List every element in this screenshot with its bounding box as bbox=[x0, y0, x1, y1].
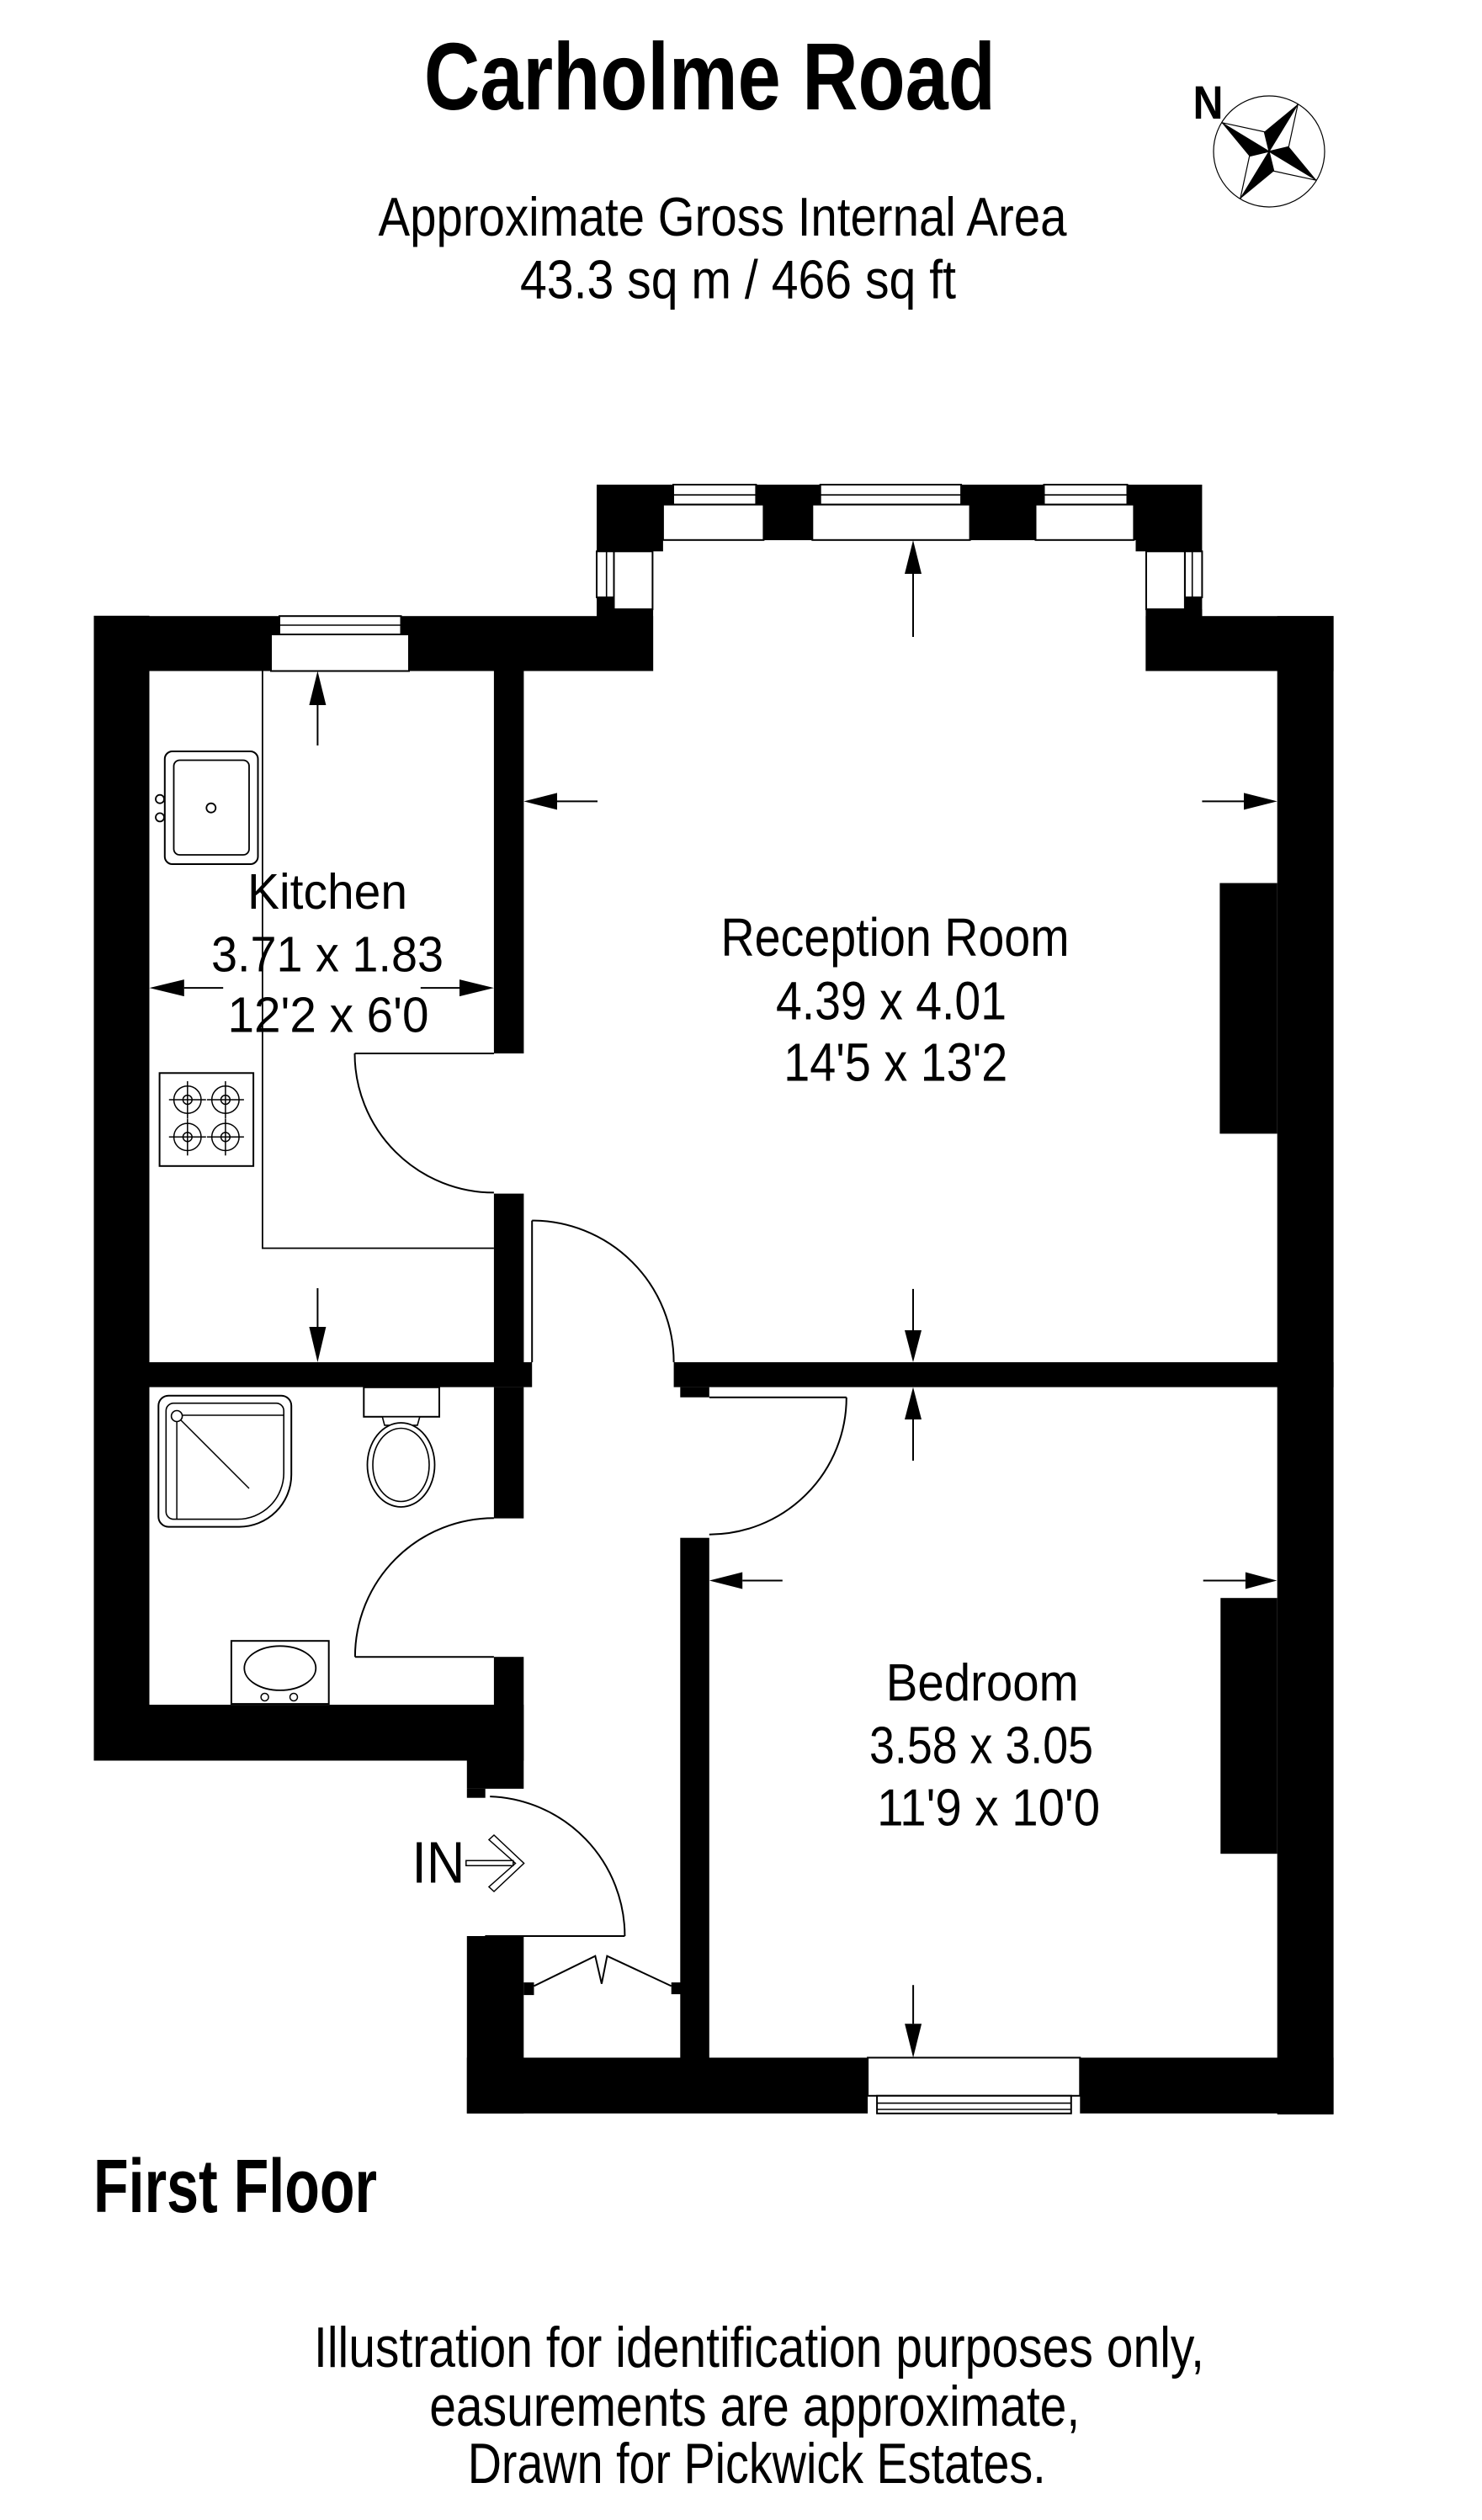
svg-text:easurements are approximate,: easurements are approximate, bbox=[429, 2374, 1080, 2438]
svg-text:Kitchen: Kitchen bbox=[247, 864, 407, 920]
svg-text:12'2 x 6'0: 12'2 x 6'0 bbox=[228, 988, 429, 1043]
svg-text:Carholme Road: Carholme Road bbox=[424, 24, 996, 130]
svg-text:First Floor: First Floor bbox=[93, 2145, 377, 2229]
svg-text:3.58 x 3.05: 3.58 x 3.05 bbox=[869, 1717, 1093, 1775]
svg-text:Illustration for identificatio: Illustration for identification purposes… bbox=[314, 2316, 1204, 2379]
svg-text:43.3 sq m / 466 sq ft: 43.3 sq m / 466 sq ft bbox=[520, 249, 956, 310]
svg-text:14'5 x 13'2: 14'5 x 13'2 bbox=[783, 1032, 1007, 1093]
svg-text:Drawn for Pickwick Estates.: Drawn for Pickwick Estates. bbox=[468, 2432, 1046, 2496]
svg-text:Approximate Gross Internal Are: Approximate Gross Internal Area bbox=[379, 186, 1068, 247]
svg-text:11'9 x 10'0: 11'9 x 10'0 bbox=[877, 1779, 1100, 1837]
svg-text:3.71 x 1.83: 3.71 x 1.83 bbox=[211, 927, 444, 983]
svg-text:4.39 x 4.01: 4.39 x 4.01 bbox=[776, 971, 1007, 1032]
svg-text:Bedroom: Bedroom bbox=[886, 1654, 1079, 1712]
svg-text:Reception Room: Reception Room bbox=[721, 907, 1070, 968]
svg-text:N: N bbox=[1193, 76, 1224, 129]
svg-text:IN: IN bbox=[412, 1829, 465, 1895]
